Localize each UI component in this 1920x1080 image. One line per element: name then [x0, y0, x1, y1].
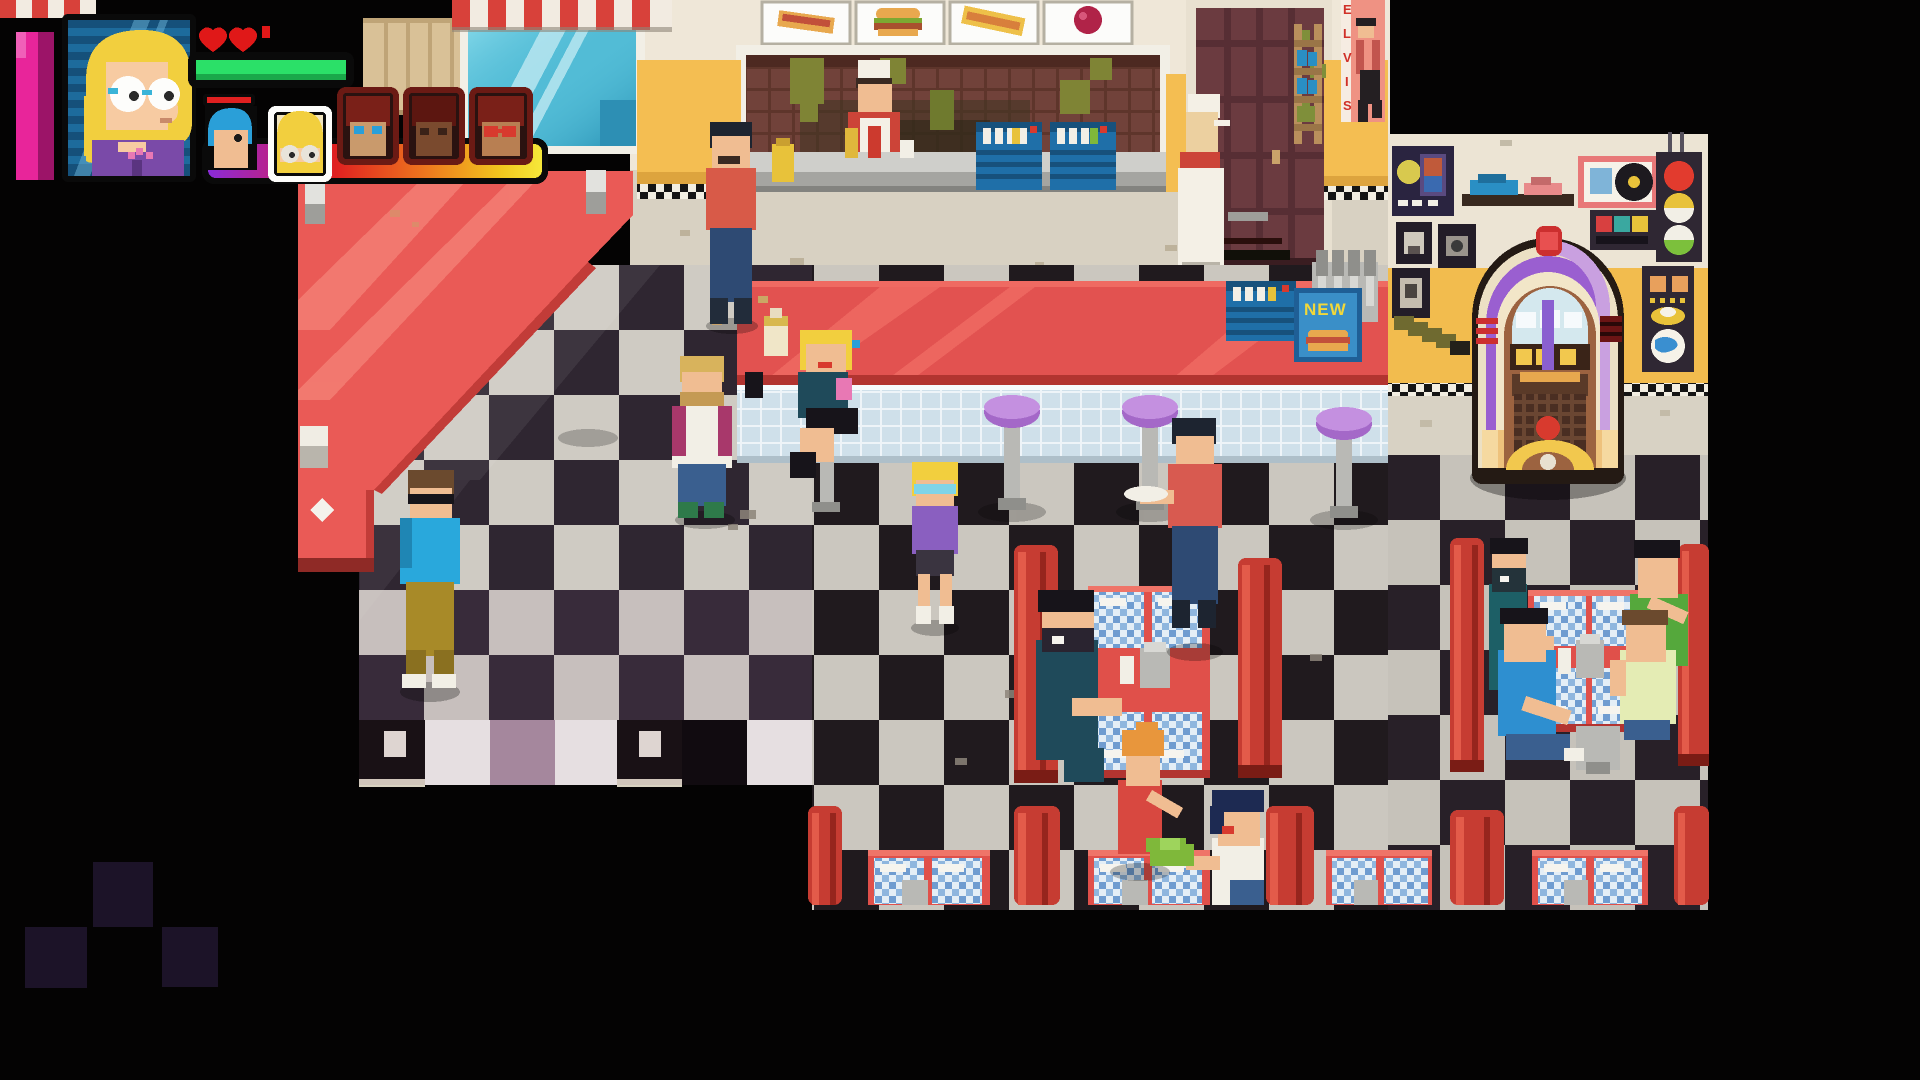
svg-text:L: L	[1343, 26, 1351, 41]
svg-text:I: I	[1345, 74, 1349, 89]
svg-text:E: E	[1343, 2, 1352, 17]
svg-text:S: S	[1343, 98, 1352, 113]
svg-text:V: V	[1343, 50, 1352, 65]
svg-text:NEW: NEW	[1304, 300, 1347, 319]
